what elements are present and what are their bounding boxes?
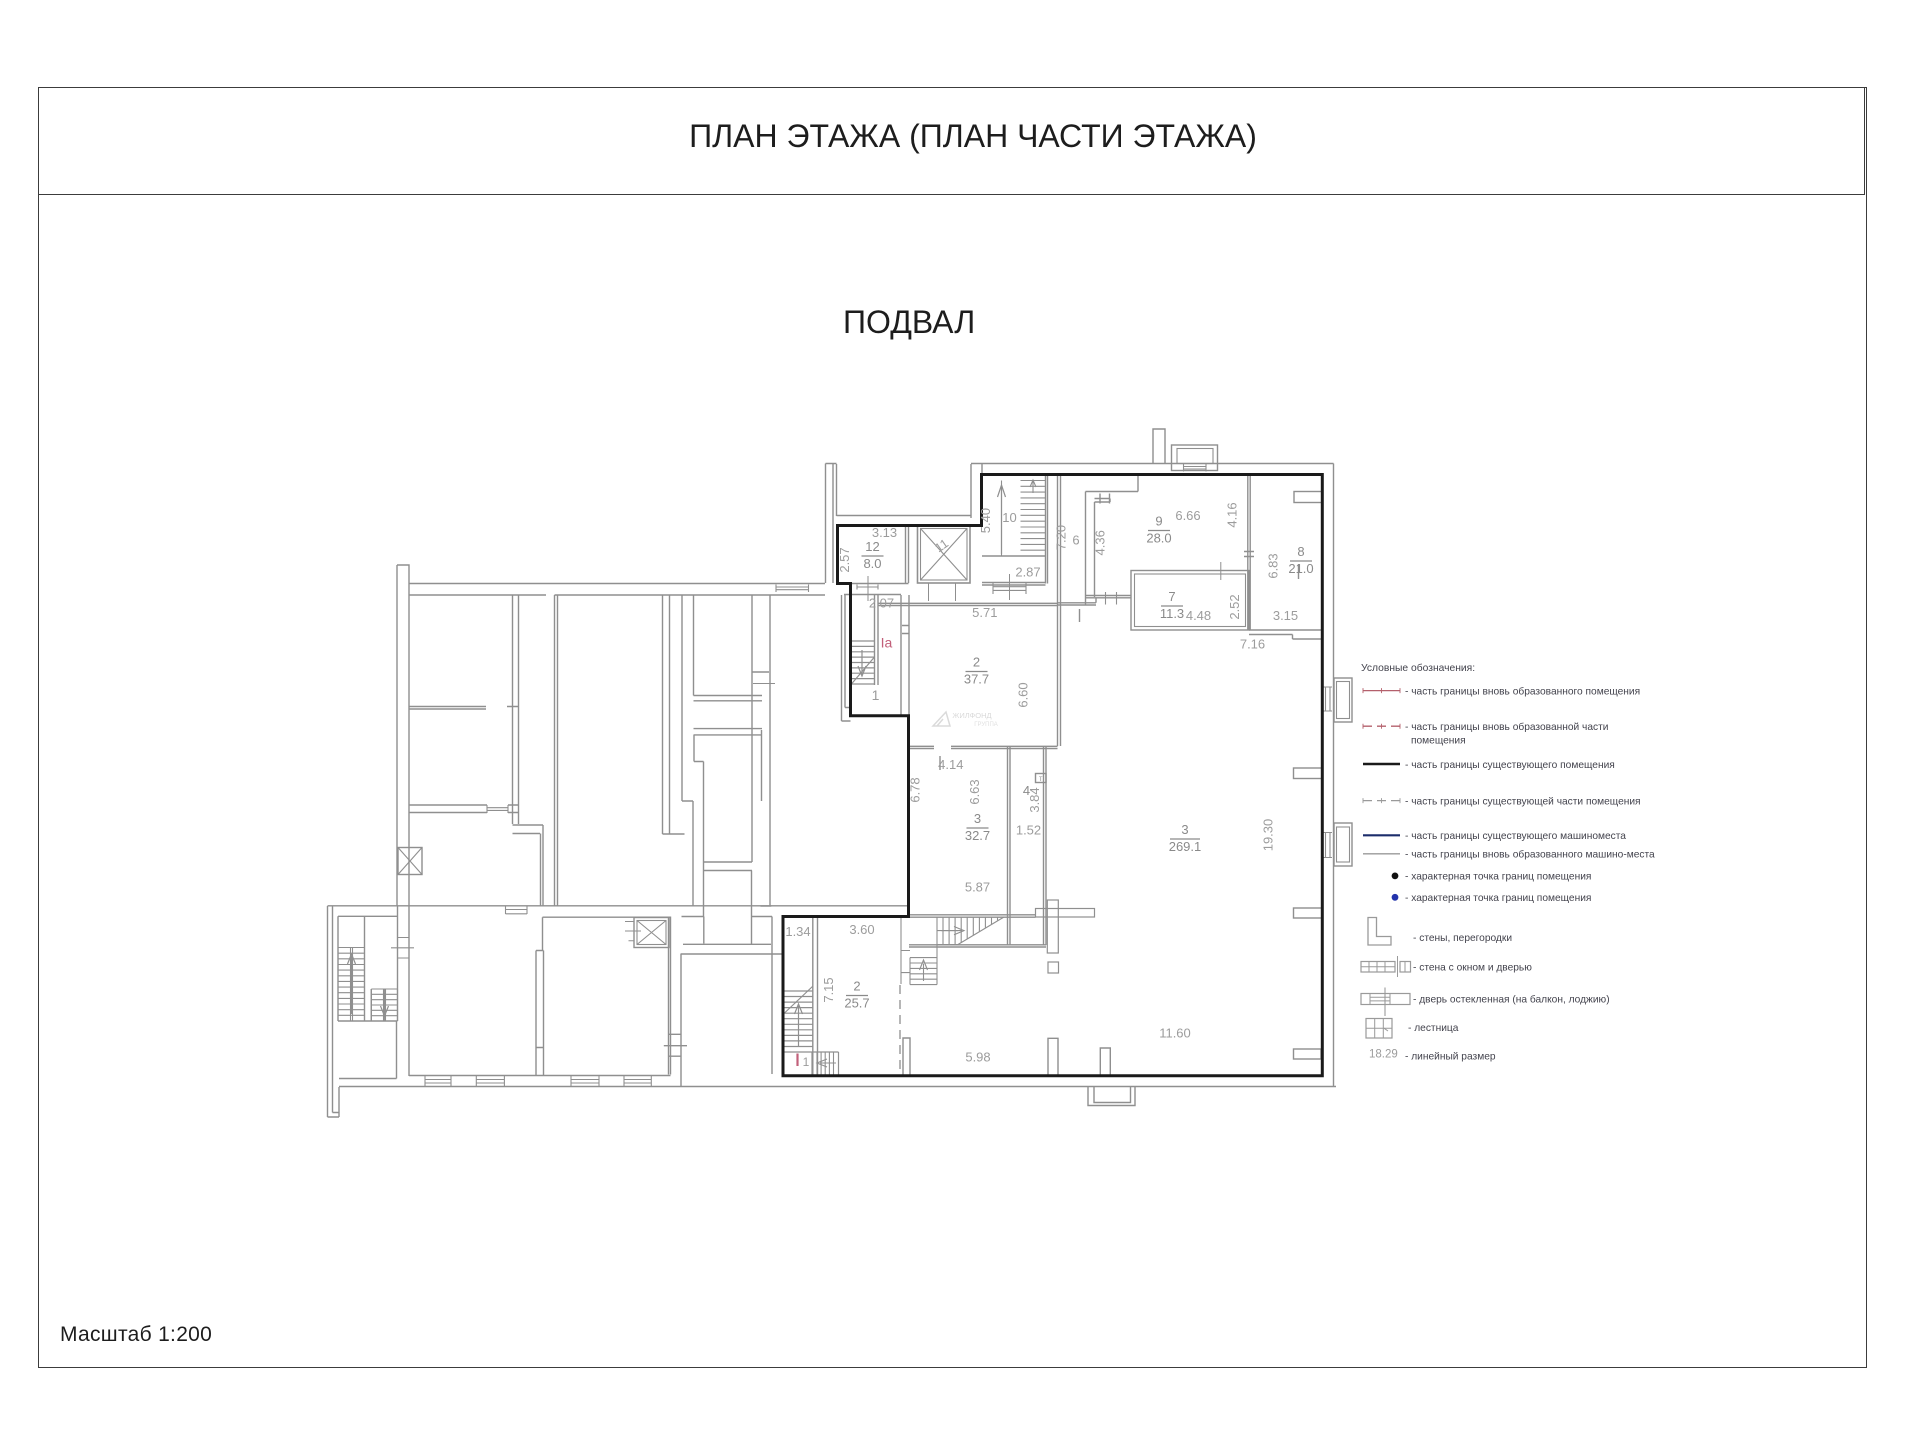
svg-text:6.78: 6.78 xyxy=(908,777,923,802)
svg-text:5.71: 5.71 xyxy=(972,605,997,620)
svg-text:2.52: 2.52 xyxy=(1227,594,1242,619)
svg-text:11: 11 xyxy=(932,536,951,555)
svg-text:28.0: 28.0 xyxy=(1146,531,1171,546)
svg-text:2.57: 2.57 xyxy=(837,547,852,572)
svg-text:5.98: 5.98 xyxy=(965,1050,990,1065)
svg-text:11.60: 11.60 xyxy=(1159,1026,1191,1041)
svg-text:2.87: 2.87 xyxy=(1015,565,1040,580)
svg-text:21.0: 21.0 xyxy=(1288,561,1313,576)
svg-text:1: 1 xyxy=(803,1055,810,1069)
svg-text:3: 3 xyxy=(974,811,981,826)
svg-text:4.16: 4.16 xyxy=(1225,502,1240,527)
svg-text:- часть границы существующего: - часть границы существующего машиномест… xyxy=(1405,831,1626,842)
svg-text:4: 4 xyxy=(1023,783,1030,798)
svg-text:Ia: Ia xyxy=(881,635,893,651)
svg-text:37.7: 37.7 xyxy=(964,672,989,687)
svg-text:6.60: 6.60 xyxy=(1016,682,1031,707)
svg-text:7.20: 7.20 xyxy=(1054,525,1069,550)
svg-text:19.30: 19.30 xyxy=(1261,819,1276,852)
svg-text:6.83: 6.83 xyxy=(1266,553,1281,578)
svg-text:- стена с окном и дверью: - стена с окном и дверью xyxy=(1413,963,1532,974)
svg-text:- характерная точка границ по: - характерная точка границ помещения xyxy=(1405,872,1591,883)
svg-text:6.63: 6.63 xyxy=(967,779,982,804)
svg-text:1.52: 1.52 xyxy=(1016,823,1041,838)
svg-text:4.48: 4.48 xyxy=(1186,608,1211,623)
svg-text:5.40: 5.40 xyxy=(978,508,993,533)
svg-text:Условные обозначения:: Условные обозначения: xyxy=(1361,662,1475,674)
svg-text:3: 3 xyxy=(1181,822,1188,837)
svg-text:32.7: 32.7 xyxy=(965,828,990,843)
svg-text:8.0: 8.0 xyxy=(863,556,881,571)
svg-text:- часть границы вновь образов: - часть границы вновь образованного маши… xyxy=(1405,849,1655,861)
svg-text:6.66: 6.66 xyxy=(1175,508,1200,523)
svg-text:1.34: 1.34 xyxy=(785,924,810,939)
svg-text:- стены, перегородки: - стены, перегородки xyxy=(1413,933,1512,944)
svg-text:7.15: 7.15 xyxy=(821,977,836,1002)
svg-text:3.15: 3.15 xyxy=(1273,608,1298,623)
svg-text:т: т xyxy=(1039,774,1043,783)
svg-text:- лестница: - лестница xyxy=(1408,1023,1459,1034)
svg-text:7: 7 xyxy=(1168,589,1175,604)
svg-text:помещения: помещения xyxy=(1411,736,1466,747)
svg-text:- характерная точка границ по: - характерная точка границ помещения xyxy=(1405,893,1591,904)
svg-text:18.29: 18.29 xyxy=(1369,1049,1398,1061)
svg-text:- часть границы вновь образов: - часть границы вновь образованной части xyxy=(1405,721,1608,733)
svg-text:3.13: 3.13 xyxy=(872,525,897,540)
svg-text:2: 2 xyxy=(853,979,860,994)
svg-text:5.87: 5.87 xyxy=(965,880,990,895)
svg-text:7.16: 7.16 xyxy=(1240,637,1265,652)
svg-text:11.3: 11.3 xyxy=(1160,606,1184,621)
svg-text:2: 2 xyxy=(973,655,980,670)
svg-text:25.7: 25.7 xyxy=(844,996,869,1011)
svg-text:- линейный размер: - линейный размер xyxy=(1405,1052,1496,1063)
svg-text:3.60: 3.60 xyxy=(849,922,874,937)
svg-text:ЖИЛФОНД: ЖИЛФОНД xyxy=(952,711,991,720)
svg-text:12: 12 xyxy=(865,539,879,554)
svg-text:2.07: 2.07 xyxy=(869,596,894,611)
svg-text:6: 6 xyxy=(1072,533,1079,548)
svg-text:- часть границы вновь образов: - часть границы вновь образованного поме… xyxy=(1405,686,1640,698)
svg-text:- часть границы существующей: - часть границы существующей части помещ… xyxy=(1405,797,1641,808)
svg-text:10: 10 xyxy=(1002,510,1016,525)
svg-text:1: 1 xyxy=(872,687,880,703)
svg-text:- дверь остекленная (на балко: - дверь остекленная (на балкон, лоджию) xyxy=(1413,994,1610,1006)
svg-text:269.1: 269.1 xyxy=(1169,839,1202,854)
svg-text:- часть границы существующего: - часть границы существующего помещения xyxy=(1405,760,1615,771)
svg-text:8: 8 xyxy=(1297,544,1304,559)
svg-text:ГРУППА: ГРУППА xyxy=(974,722,998,728)
svg-text:4.14: 4.14 xyxy=(938,757,963,772)
svg-text:9: 9 xyxy=(1155,514,1162,529)
svg-text:4.36: 4.36 xyxy=(1093,530,1108,555)
